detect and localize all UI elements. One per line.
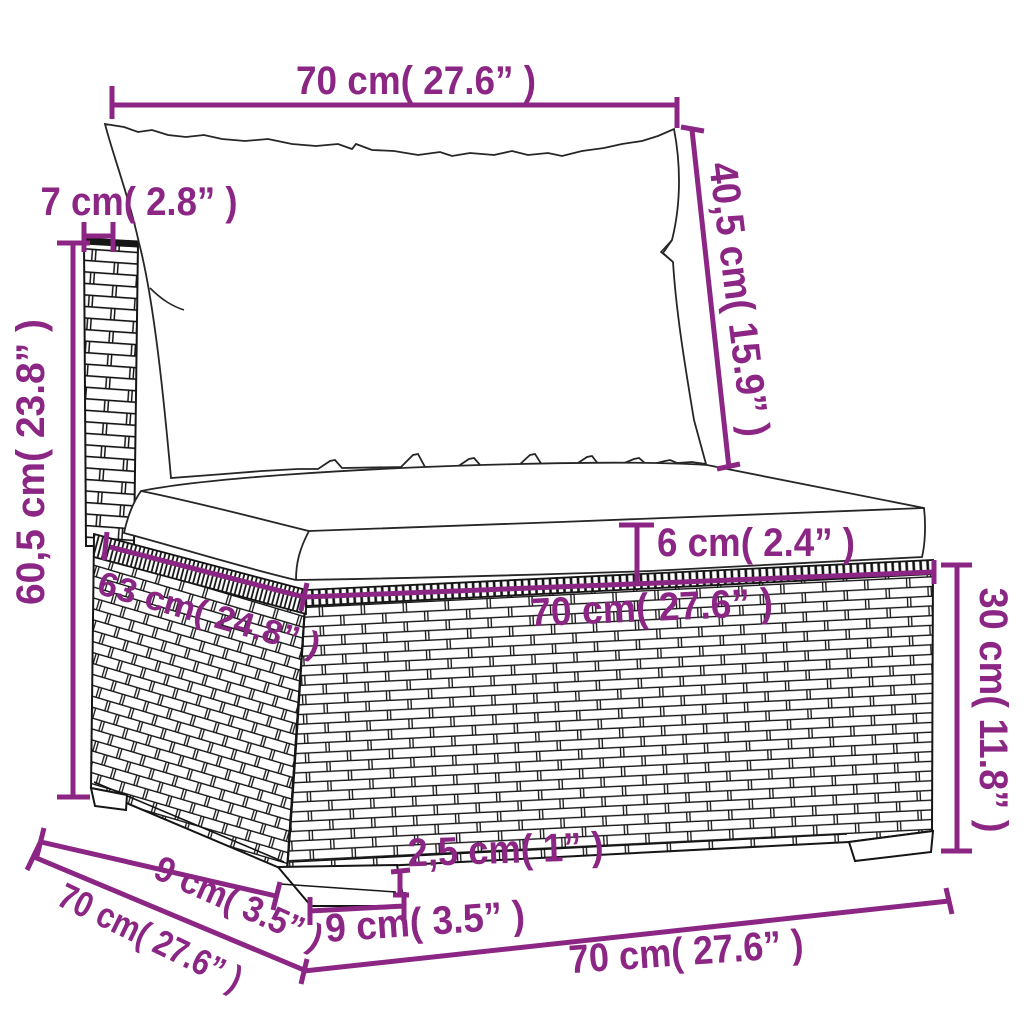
svg-text:30 cm( 11.8” ): 30 cm( 11.8” ) <box>971 588 1015 833</box>
svg-text:2,5 cm( 1” ): 2,5 cm( 1” ) <box>407 825 604 876</box>
svg-text:7 cm( 2.8” ): 7 cm( 2.8” ) <box>41 180 238 224</box>
svg-text:70 cm( 27.6” ): 70 cm( 27.6” ) <box>296 59 536 103</box>
svg-text:6 cm( 2.4” ): 6 cm( 2.4” ) <box>657 521 855 565</box>
svg-text:60,5 cm( 23.8” ): 60,5 cm( 23.8” ) <box>9 319 53 605</box>
